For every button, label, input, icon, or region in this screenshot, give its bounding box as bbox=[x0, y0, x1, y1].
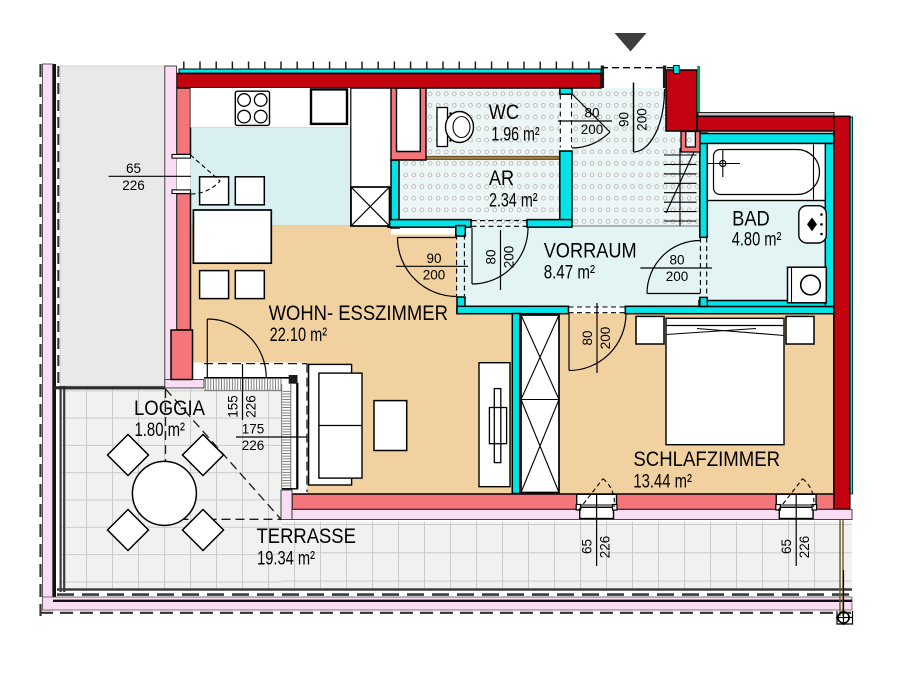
svg-text:80: 80 bbox=[669, 253, 684, 268]
svg-text:200: 200 bbox=[666, 269, 689, 284]
svg-text:80: 80 bbox=[483, 249, 498, 264]
svg-text:1.96 m²: 1.96 m² bbox=[491, 125, 539, 146]
svg-text:LOGGIA: LOGGIA bbox=[134, 396, 206, 420]
svg-text:90: 90 bbox=[616, 112, 631, 127]
svg-text:226: 226 bbox=[242, 438, 265, 453]
svg-text:226: 226 bbox=[598, 536, 613, 559]
svg-text:VORRAUM: VORRAUM bbox=[544, 239, 637, 263]
svg-text:2.34 m²: 2.34 m² bbox=[489, 191, 538, 212]
svg-text:BAD: BAD bbox=[732, 207, 770, 231]
svg-text:200: 200 bbox=[502, 246, 517, 269]
svg-text:4.80 m²: 4.80 m² bbox=[732, 229, 782, 250]
svg-text:WC: WC bbox=[489, 100, 519, 124]
svg-text:65: 65 bbox=[126, 161, 141, 176]
svg-text:155: 155 bbox=[225, 395, 240, 418]
svg-text:65: 65 bbox=[579, 539, 594, 554]
svg-text:13.44 m²: 13.44 m² bbox=[633, 471, 692, 492]
svg-text:80: 80 bbox=[580, 330, 595, 345]
svg-text:200: 200 bbox=[635, 108, 650, 131]
svg-text:226: 226 bbox=[797, 536, 812, 559]
svg-text:80: 80 bbox=[584, 106, 599, 121]
svg-text:AR: AR bbox=[489, 166, 514, 190]
svg-text:1.80 m²: 1.80 m² bbox=[135, 420, 186, 441]
svg-text:226: 226 bbox=[122, 178, 145, 193]
svg-text:90: 90 bbox=[426, 251, 441, 266]
svg-text:SCHLAFZIMMER: SCHLAFZIMMER bbox=[633, 447, 780, 471]
svg-text:TERRASSE: TERRASSE bbox=[257, 524, 356, 548]
svg-text:200: 200 bbox=[423, 267, 446, 282]
svg-text:8.47 m²: 8.47 m² bbox=[544, 262, 595, 283]
svg-text:22.10 m²: 22.10 m² bbox=[270, 325, 328, 346]
svg-text:200: 200 bbox=[598, 327, 613, 350]
svg-text:65: 65 bbox=[779, 539, 794, 554]
svg-text:WOHN- ESSZIMMER: WOHN- ESSZIMMER bbox=[269, 301, 448, 325]
svg-text:19.34 m²: 19.34 m² bbox=[257, 548, 315, 569]
svg-text:200: 200 bbox=[581, 122, 604, 137]
svg-text:175: 175 bbox=[242, 422, 265, 437]
svg-text:226: 226 bbox=[244, 395, 259, 418]
